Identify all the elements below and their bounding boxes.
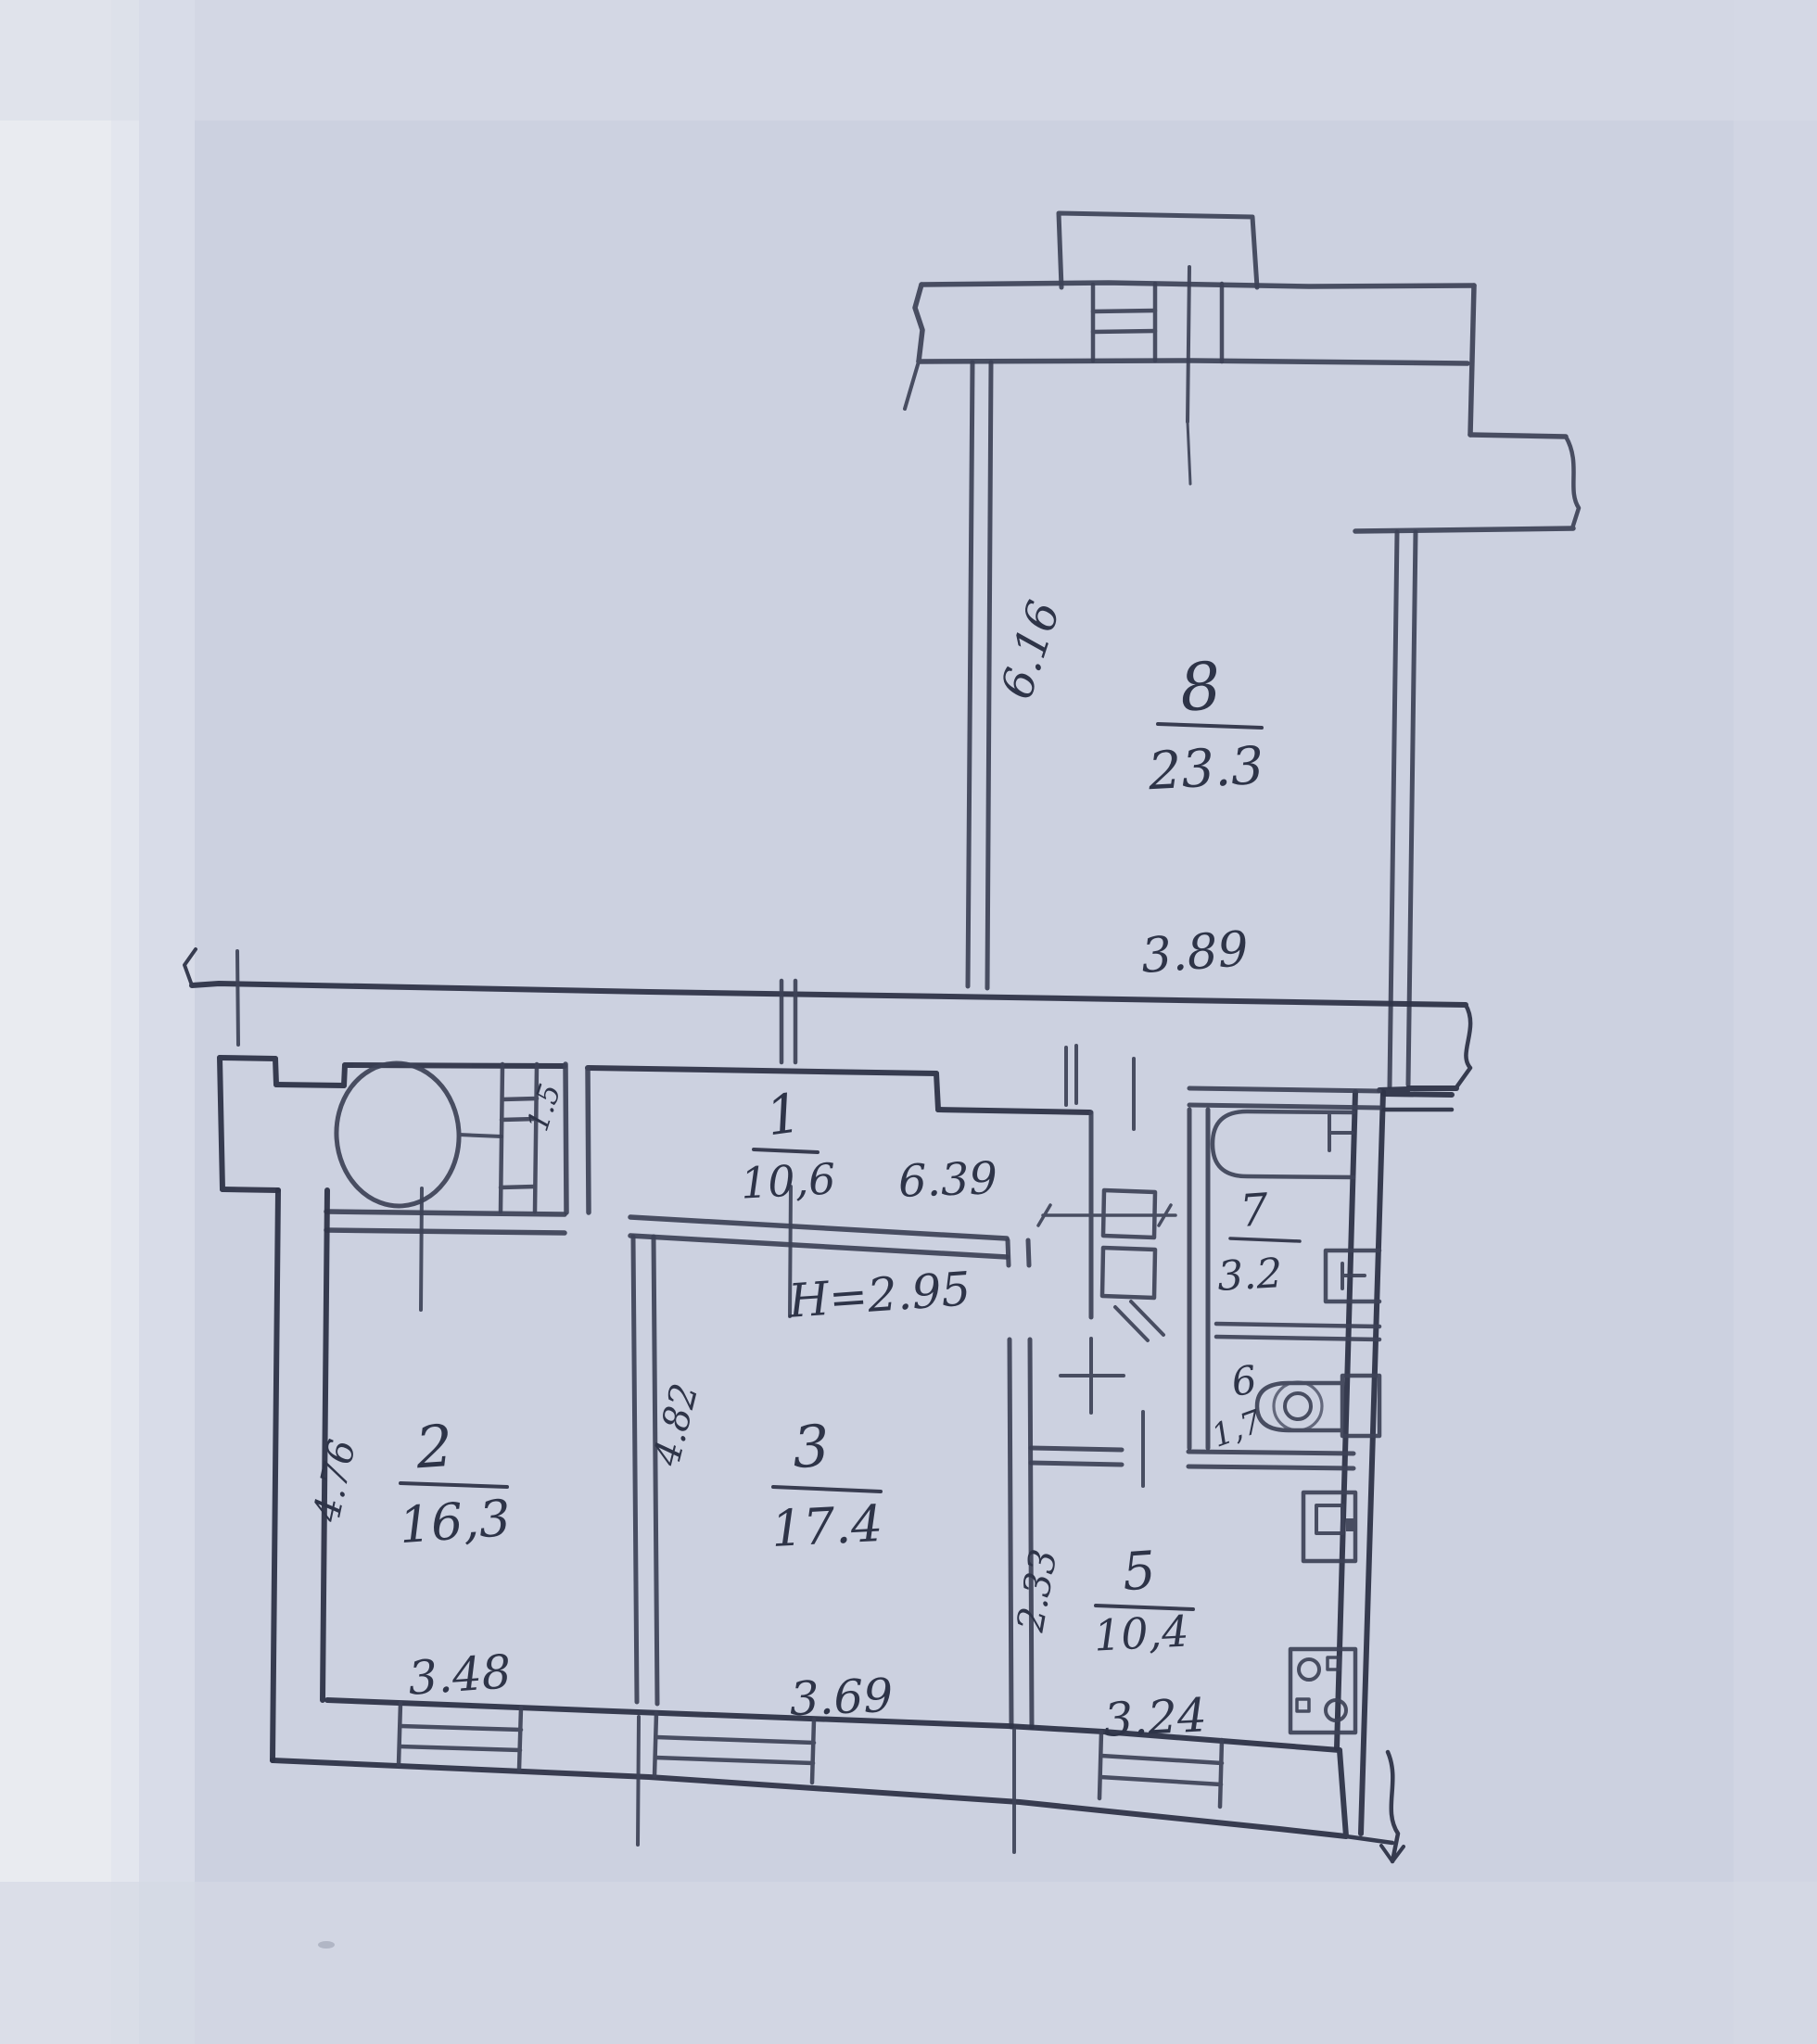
room-2-number-label: 2 bbox=[413, 1412, 454, 1482]
floor-plan-canvas: 8 23.3 6.16 3.89 1 10,6 6.39 H=2.95 1.5 … bbox=[0, 0, 1817, 2044]
dim-3-24-label: 3.24 bbox=[1102, 1688, 1208, 1747]
kitchen-number-label: 5 bbox=[1121, 1541, 1158, 1603]
scanned-floor-plan-page: 8 23.3 6.16 3.89 1 10,6 6.39 H=2.95 1.5 … bbox=[0, 0, 1817, 2044]
bathroom-number-label: 7 bbox=[1239, 1184, 1271, 1238]
dim-3-89-label: 3.89 bbox=[1139, 921, 1251, 984]
room-3-area-label: 17.4 bbox=[769, 1494, 883, 1558]
room-2-area-label: 16,3 bbox=[398, 1489, 513, 1555]
room-8-number-label: 8 bbox=[1176, 647, 1225, 727]
bathroom-area-label: 3.2 bbox=[1216, 1250, 1284, 1301]
hall-area-label: 10,6 bbox=[740, 1153, 837, 1208]
room-3-number-label: 3 bbox=[791, 1412, 831, 1481]
dim-3-69-label: 3.69 bbox=[789, 1669, 894, 1726]
dim-3-48-label: 3.48 bbox=[406, 1644, 513, 1706]
room-8-area-label: 23.3 bbox=[1146, 736, 1265, 802]
dim-6-39-label: 6.39 bbox=[897, 1152, 998, 1208]
kitchen-area-label: 10,4 bbox=[1093, 1606, 1190, 1660]
